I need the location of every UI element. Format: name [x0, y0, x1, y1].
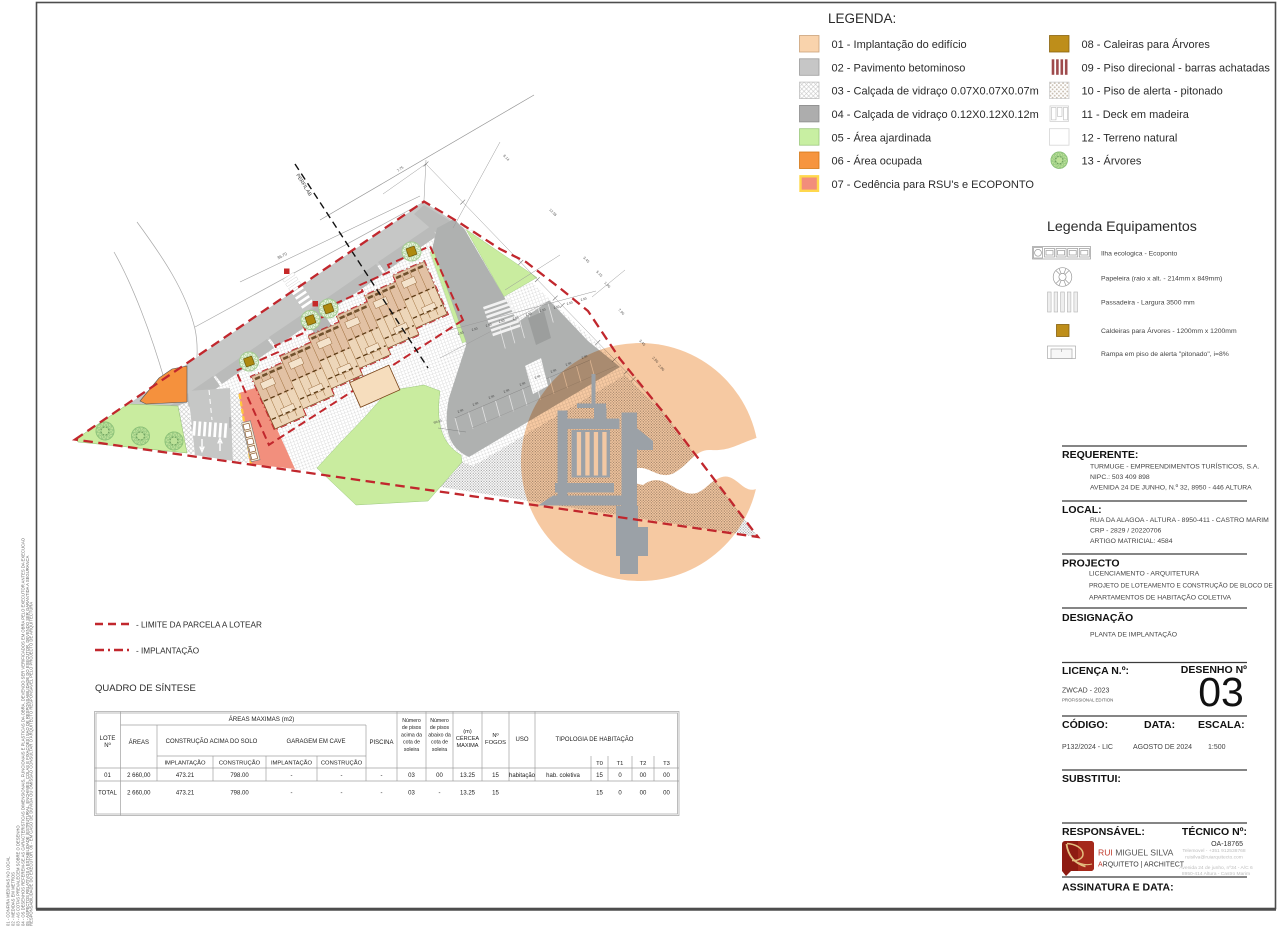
- svg-text:ÁREAS: ÁREAS: [129, 739, 149, 746]
- svg-text:(m): (m): [463, 729, 472, 735]
- svg-text:Nº: Nº: [492, 732, 499, 739]
- svg-text:12.55: 12.55: [548, 208, 557, 217]
- svg-text:-: -: [439, 791, 441, 797]
- svg-text:TOTAL: TOTAL: [98, 791, 117, 797]
- svg-text:-: -: [381, 791, 383, 797]
- svg-text:CÉRCEA: CÉRCEA: [456, 735, 480, 742]
- svg-text:07 - Cedência para RSU's e ECO: 07 - Cedência para RSU's e ECOPONTO: [832, 179, 1035, 191]
- svg-text:02 - Pavimento betominoso: 02 - Pavimento betominoso: [832, 62, 966, 74]
- svg-text:LICENÇA N.º:: LICENÇA N.º:: [1062, 665, 1129, 677]
- svg-text:AGOSTO DE 2024: AGOSTO DE 2024: [1133, 744, 1192, 751]
- svg-text:NIPC.: 503 409 898: NIPC.: 503 409 898: [1090, 474, 1150, 481]
- svg-text:- IMPLANTAÇÃO: - IMPLANTAÇÃO: [136, 646, 199, 656]
- svg-text:RESPONSABILIDADE DO EXECUTOR.: RESPONSABILIDADE DO EXECUTOR. 06 - EM CA…: [29, 602, 34, 926]
- svg-text:15: 15: [596, 791, 603, 797]
- svg-text:3.45: 3.45: [582, 256, 590, 264]
- svg-text:acima da: acima da: [401, 732, 422, 738]
- svg-text:ASSINATURA E DATA:: ASSINATURA E DATA:: [1062, 882, 1174, 894]
- svg-text:TURMUGE - EMPREENDIMENTOS TURÍ: TURMUGE - EMPREENDIMENTOS TURÍSTICOS, S.…: [1090, 462, 1259, 471]
- svg-text:5.15: 5.15: [595, 270, 603, 278]
- svg-text:REQUERENTE:: REQUERENTE:: [1062, 449, 1138, 461]
- svg-text:SUBSTITUI:: SUBSTITUI:: [1062, 773, 1121, 785]
- svg-text:09 - Piso direcional - barras: 09 - Piso direcional - barras achatadas: [1082, 62, 1271, 74]
- svg-text:Papeleira (raio x alt. - 214mm: Papeleira (raio x alt. - 214mm x 849mm): [1101, 276, 1222, 283]
- svg-text:36.70: 36.70: [276, 251, 288, 261]
- svg-text:cota de: cota de: [403, 740, 420, 746]
- svg-text:-: -: [341, 773, 343, 779]
- svg-text:2 660,00: 2 660,00: [127, 791, 151, 797]
- svg-text:0: 0: [618, 773, 622, 779]
- svg-text:Passadeira - Largura 3500 mm: Passadeira - Largura 3500 mm: [1101, 300, 1195, 307]
- svg-text:04 - Calçada de vidraço 0.12X0: 04 - Calçada de vidraço 0.12X0.12X0.12m: [832, 109, 1039, 121]
- svg-text:03 - Calçada de vidraço 0.07X0: 03 - Calçada de vidraço 0.07X0.07X0.07m: [832, 86, 1039, 98]
- svg-text:11 - Deck em madeira: 11 - Deck em madeira: [1082, 109, 1190, 121]
- svg-text:soleira: soleira: [404, 747, 419, 753]
- svg-text:FOGOS: FOGOS: [485, 740, 506, 746]
- svg-text:13 - Árvores: 13 - Árvores: [1082, 155, 1142, 168]
- svg-text:AVENIDA 24 DE JUNHO, N.º 32, 8: AVENIDA 24 DE JUNHO, N.º 32, 8950 - 446 …: [1090, 485, 1252, 492]
- svg-text:Telemovel - +351 912538768: Telemovel - +351 912538768: [1182, 848, 1245, 854]
- svg-text:10 - Piso de alerta - pitonado: 10 - Piso de alerta - pitonado: [1082, 86, 1223, 98]
- svg-text:-: -: [381, 773, 383, 779]
- svg-text:RUA DA ALAGOA - ALTURA - 8950-: RUA DA ALAGOA - ALTURA - 8950-411 - CAST…: [1090, 517, 1269, 524]
- svg-text:03: 03: [408, 773, 415, 779]
- svg-text:cota de: cota de: [431, 740, 448, 746]
- svg-text:CRP - 2829 / 20220706: CRP - 2829 / 20220706: [1090, 528, 1162, 535]
- svg-text:7.90: 7.90: [617, 308, 625, 316]
- svg-text:03: 03: [408, 791, 415, 797]
- svg-text:PROJECTO: PROJECTO: [1062, 558, 1120, 570]
- svg-text:RESPONSÁVEL:: RESPONSÁVEL:: [1062, 825, 1145, 838]
- svg-text:Nº: Nº: [104, 742, 111, 749]
- svg-text:-: -: [291, 773, 293, 779]
- svg-text:TÉCNICO Nº:: TÉCNICO Nº:: [1182, 825, 1247, 838]
- svg-text:habitação: habitação: [509, 773, 536, 779]
- svg-text:03: 03: [1198, 669, 1244, 715]
- svg-text:PISCINA: PISCINA: [369, 740, 393, 746]
- svg-text:PROJETO DE LOTEAMENTO E CONSTR: PROJETO DE LOTEAMENTO E CONSTRUÇÃO DE BL…: [1089, 581, 1273, 590]
- svg-text:CONSTRUÇÃO: CONSTRUÇÃO: [219, 760, 261, 767]
- svg-text:Rampa em piso de alerta "piton: Rampa em piso de alerta "pitonado", i=8%: [1101, 351, 1229, 358]
- svg-text:IMPLANTAÇÃO: IMPLANTAÇÃO: [271, 760, 313, 767]
- svg-text:-: -: [341, 791, 343, 797]
- svg-text:Caldeiras para Árvores - 1200m: Caldeiras para Árvores - 1200mm x 1200mm: [1101, 326, 1237, 335]
- svg-text:06 - Área ocupada: 06 - Área ocupada: [832, 155, 923, 168]
- svg-text:00: 00: [640, 773, 647, 779]
- svg-text:00: 00: [663, 773, 670, 779]
- svg-text:RUI MIGUEL SILVA: RUI MIGUEL SILVA: [1098, 848, 1174, 858]
- svg-text:473.21: 473.21: [176, 791, 195, 797]
- svg-text:ZWCAD - 2023: ZWCAD - 2023: [1062, 688, 1110, 695]
- svg-text:soleira: soleira: [432, 747, 447, 753]
- svg-text:T0: T0: [596, 761, 603, 767]
- svg-text:CÓDIGO:: CÓDIGO:: [1062, 718, 1108, 731]
- svg-text:8.14: 8.14: [502, 154, 510, 162]
- svg-text:USO: USO: [515, 737, 528, 743]
- svg-text:8950-414 Altura - Castro Marim: 8950-414 Altura - Castro Marim: [1182, 871, 1250, 877]
- svg-text:Legenda Equipamentos: Legenda Equipamentos: [1047, 219, 1197, 235]
- svg-text:DATA:: DATA:: [1144, 719, 1175, 731]
- svg-text:Número: Número: [430, 718, 449, 724]
- svg-text:P132/2024 - LIC: P132/2024 - LIC: [1062, 744, 1113, 751]
- svg-text:CONSTRUÇÃO: CONSTRUÇÃO: [321, 760, 363, 767]
- svg-text:MAXIMA: MAXIMA: [456, 743, 478, 749]
- svg-text:01: 01: [104, 773, 111, 779]
- svg-text:DESIGNAÇÃO: DESIGNAÇÃO: [1062, 611, 1133, 624]
- svg-text:ruisilva@ruiarquitecto.com: ruisilva@ruiarquitecto.com: [1185, 855, 1243, 861]
- svg-text:T1: T1: [617, 761, 624, 767]
- svg-text:05 - Área ajardinada: 05 - Área ajardinada: [832, 131, 933, 144]
- svg-text:T3: T3: [663, 761, 670, 767]
- svg-text:00: 00: [436, 773, 443, 779]
- svg-text:2.50: 2.50: [566, 300, 573, 306]
- svg-text:PROFISSIONAL EDITION: PROFISSIONAL EDITION: [1062, 698, 1113, 703]
- svg-text:15: 15: [492, 773, 499, 779]
- svg-text:0: 0: [618, 791, 622, 797]
- svg-text:OA-18765: OA-18765: [1211, 841, 1243, 848]
- svg-text:15: 15: [492, 791, 499, 797]
- svg-text:IMPLANTAÇÃO: IMPLANTAÇÃO: [164, 760, 206, 767]
- svg-text:00: 00: [640, 791, 647, 797]
- svg-text:13.25: 13.25: [460, 791, 476, 797]
- svg-text:LEGENDA:: LEGENDA:: [828, 11, 896, 26]
- svg-text:Ilha ecologica - Ecoponto: Ilha ecologica - Ecoponto: [1101, 251, 1178, 258]
- svg-text:13.25: 13.25: [460, 773, 476, 779]
- svg-text:GARAGEM EM CAVE: GARAGEM EM CAVE: [287, 739, 346, 745]
- svg-text:00: 00: [663, 791, 670, 797]
- svg-text:15: 15: [596, 773, 603, 779]
- svg-text:ARQUITETO | ARCHITECT: ARQUITETO | ARCHITECT: [1098, 862, 1185, 869]
- svg-text:ARTIGO MATRICIAL: 4584: ARTIGO MATRICIAL: 4584: [1090, 538, 1173, 545]
- svg-text:LOTE: LOTE: [100, 736, 116, 742]
- svg-text:LOCAL:: LOCAL:: [1062, 504, 1102, 516]
- svg-text:ÁREAS MAXIMAS (m2): ÁREAS MAXIMAS (m2): [229, 716, 295, 723]
- svg-text:08 - Caleiras para Árvores: 08 - Caleiras para Árvores: [1082, 38, 1211, 51]
- svg-text:- LIMITE DA PARCELA A LOTEAR: - LIMITE DA PARCELA A LOTEAR: [136, 621, 262, 630]
- svg-text:LICENCIAMENTO - ARQUITETURA: LICENCIAMENTO - ARQUITETURA: [1089, 571, 1200, 578]
- svg-text:798.00: 798.00: [230, 773, 249, 779]
- svg-text:-: -: [291, 791, 293, 797]
- svg-text:1:500: 1:500: [1208, 744, 1226, 751]
- svg-text:Avenida 24 de junho, nº34 - A/: Avenida 24 de junho, nº34 - A/C 6: [1179, 865, 1253, 871]
- svg-text:12 - Terreno natural: 12 - Terreno natural: [1082, 132, 1178, 144]
- svg-text:473.21: 473.21: [176, 773, 195, 779]
- svg-text:de pisos: de pisos: [430, 725, 450, 731]
- svg-text:CONSTRUÇÃO ACIMA DO SOLO: CONSTRUÇÃO ACIMA DO SOLO: [166, 738, 258, 745]
- svg-text:hab. coletiva: hab. coletiva: [546, 773, 580, 779]
- svg-text:2 660,00: 2 660,00: [127, 773, 151, 779]
- svg-text:01 - Implantação do edifício: 01 - Implantação do edifício: [832, 39, 967, 51]
- svg-text:APARTAMENTOS DE HABITAÇÃO COLE: APARTAMENTOS DE HABITAÇÃO COLETIVA: [1089, 593, 1231, 602]
- svg-text:PLANTA DE IMPLANTAÇÃO: PLANTA DE IMPLANTAÇÃO: [1090, 630, 1177, 639]
- svg-text:QUADRO DE SÍNTESE: QUADRO DE SÍNTESE: [95, 683, 196, 694]
- svg-text:de pisos: de pisos: [402, 725, 422, 731]
- svg-text:TIPOLOGIA DE HABITAÇÃO: TIPOLOGIA DE HABITAÇÃO: [556, 736, 634, 743]
- svg-text:abaixo da: abaixo da: [428, 732, 451, 738]
- svg-text:Número: Número: [402, 718, 421, 724]
- svg-text:798.00: 798.00: [230, 791, 249, 797]
- svg-text:2.50: 2.50: [580, 296, 587, 302]
- svg-text:T2: T2: [640, 761, 647, 767]
- svg-text:ESCALA:: ESCALA:: [1198, 719, 1245, 731]
